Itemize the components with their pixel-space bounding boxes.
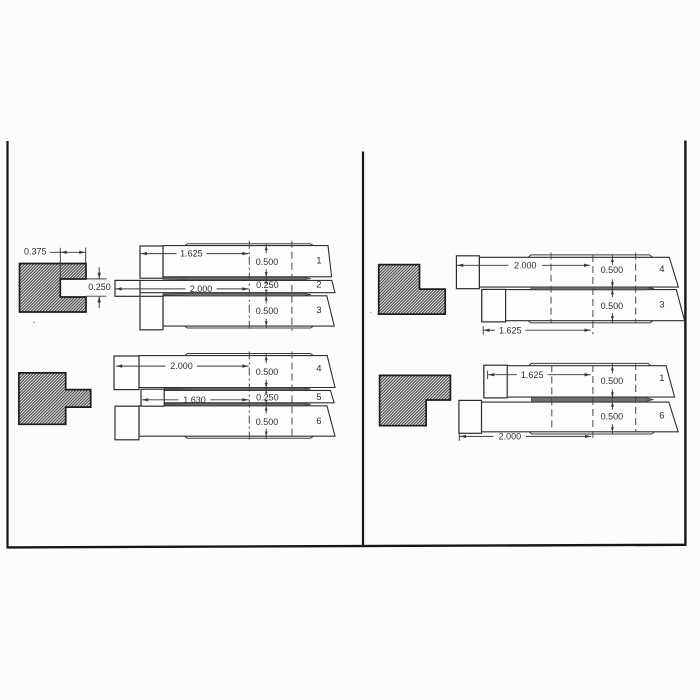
svg-text:0.375: 0.375 [24,246,47,256]
svg-text:3: 3 [316,305,321,316]
svg-text:0.500: 0.500 [256,367,279,377]
svg-text:2.000: 2.000 [170,361,193,371]
svg-text:1.625: 1.625 [180,249,203,259]
svg-text:0.500: 0.500 [256,306,279,316]
svg-text:0.250: 0.250 [256,280,279,290]
svg-text:4: 4 [659,264,664,275]
svg-text:0.500: 0.500 [256,257,279,267]
svg-text:1.625: 1.625 [499,325,522,335]
svg-text:0.250: 0.250 [88,282,111,292]
svg-text:1.625: 1.625 [521,370,544,380]
svg-text:2.000: 2.000 [190,284,213,294]
svg-text:0.500: 0.500 [601,265,624,275]
svg-text:0.500: 0.500 [256,417,279,427]
svg-text:4: 4 [316,364,321,375]
svg-text:0.250: 0.250 [256,392,279,402]
svg-text:1: 1 [316,256,321,267]
svg-text:0.500: 0.500 [601,376,624,386]
svg-text:0.500: 0.500 [601,412,624,422]
svg-text:2: 2 [316,279,321,290]
svg-text:2.000: 2.000 [499,432,522,442]
svg-text:3: 3 [659,300,664,311]
svg-text:1: 1 [659,373,664,384]
svg-text:1.630: 1.630 [183,395,206,405]
svg-text:6: 6 [659,410,664,421]
svg-text:6: 6 [316,416,321,427]
svg-text:0.500: 0.500 [601,301,624,311]
svg-text:5: 5 [316,392,321,403]
svg-text:2.000: 2.000 [514,260,537,270]
